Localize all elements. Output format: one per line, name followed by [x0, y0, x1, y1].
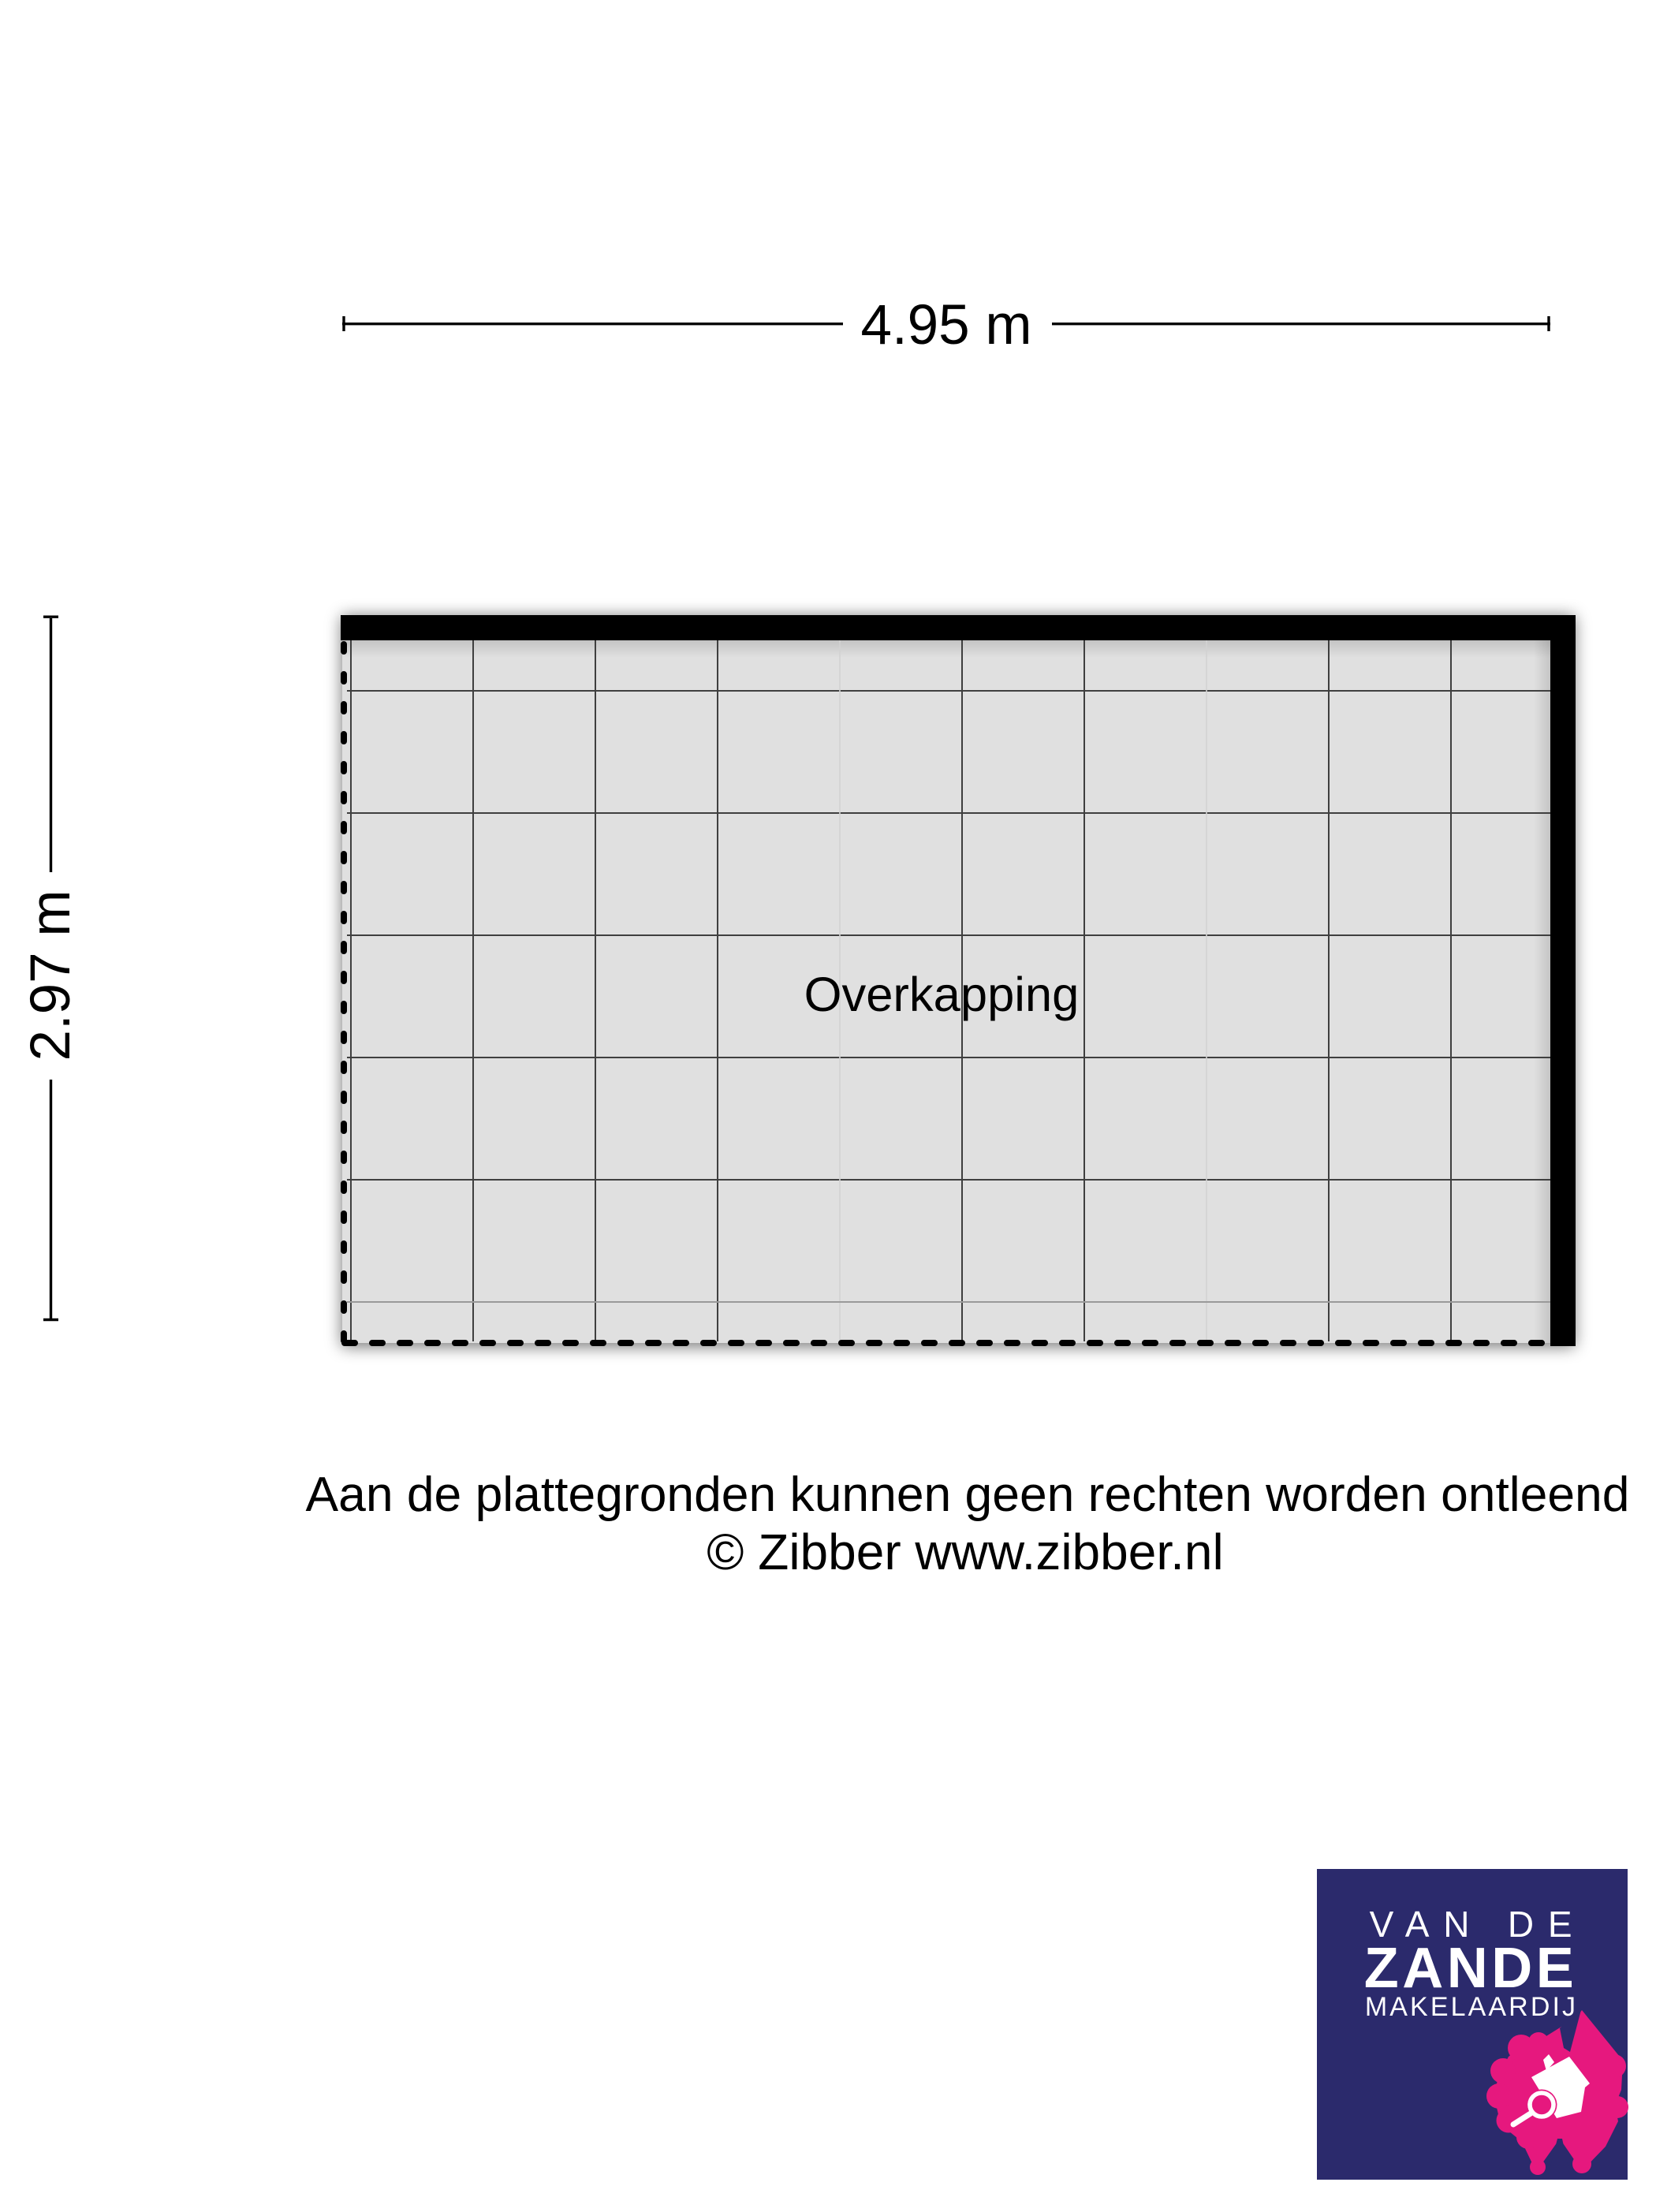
- svg-text:© Zibber www.zibber.nl: © Zibber www.zibber.nl: [707, 1524, 1223, 1580]
- svg-text:4.95 m: 4.95 m: [860, 294, 1031, 356]
- svg-text:ZANDE: ZANDE: [1364, 1937, 1578, 2000]
- svg-text:Overkapping: Overkapping: [804, 968, 1080, 1022]
- svg-text:2.97 m: 2.97 m: [20, 890, 82, 1061]
- svg-text:Aan de plattegronden kunnen ge: Aan de plattegronden kunnen geen rechten…: [306, 1468, 1630, 1522]
- svg-text:MAKELAARDIJ: MAKELAARDIJ: [1365, 1992, 1578, 2022]
